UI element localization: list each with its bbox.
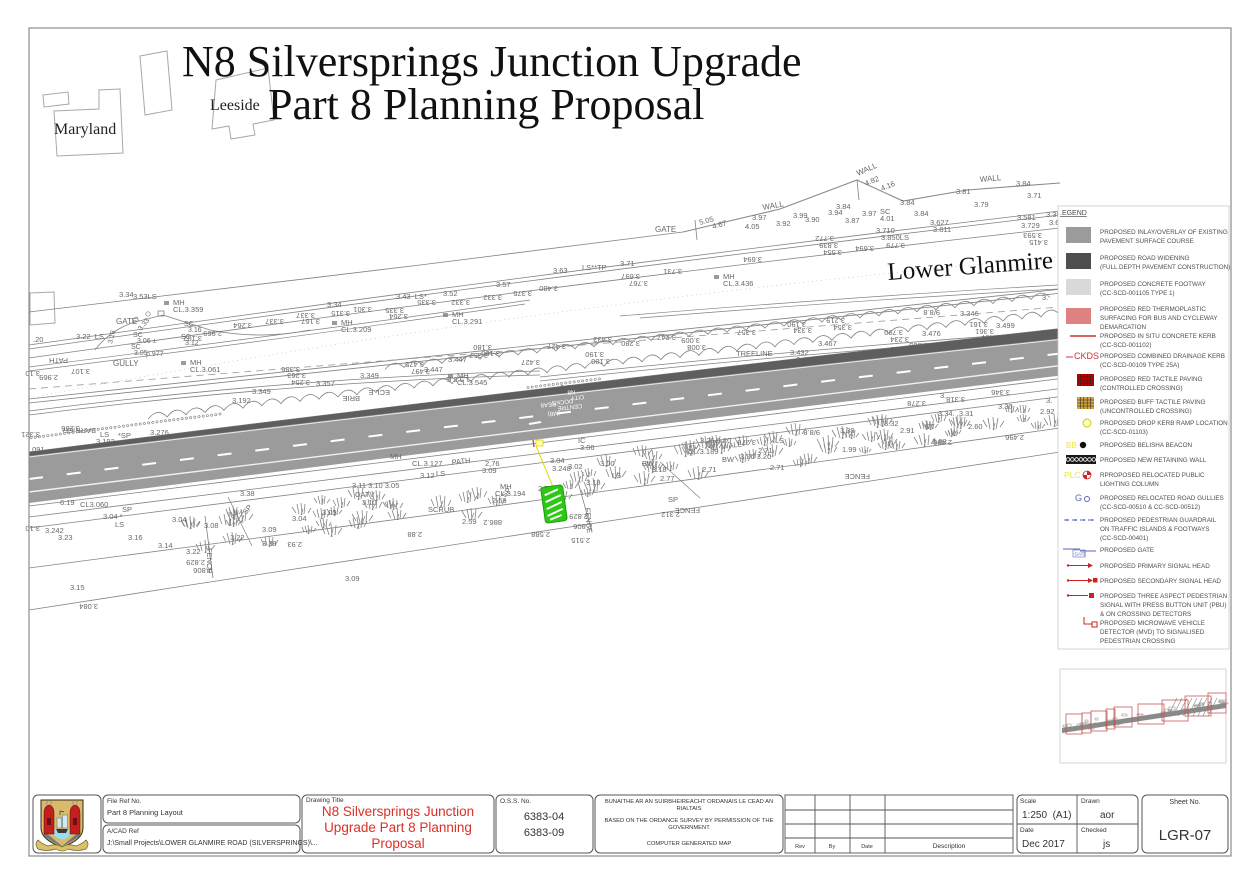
svg-text:(CC-SCD-001102): (CC-SCD-001102) (1100, 342, 1151, 349)
svg-text:3.09: 3.09 (262, 525, 277, 534)
svg-text:N8: N8 (567, 388, 576, 395)
svg-text:Date: Date (861, 844, 873, 850)
svg-text:PROPOSED PEDESTRIAN GUARDRAIL: PROPOSED PEDESTRIAN GUARDRAIL (1100, 517, 1217, 524)
svg-text:3.248: 3.248 (552, 464, 571, 473)
svg-text:3.335: 3.335 (417, 298, 436, 307)
svg-text:3.447: 3.447 (448, 355, 467, 364)
svg-text:PEDESTRIAN CROSSING: PEDESTRIAN CROSSING (1100, 638, 1176, 645)
svg-text:(CC-SCD-00401): (CC-SCD-00401) (1100, 535, 1148, 542)
svg-text:Scale: Scale (1020, 798, 1037, 805)
svg-text:DEMARCATION: DEMARCATION (1100, 324, 1147, 331)
svg-text:3.160: 3.160 (481, 349, 500, 358)
svg-text:(CC-SCD-00109 TYPE 25A): (CC-SCD-00109 TYPE 25A) (1100, 362, 1179, 369)
svg-text:File Ref No.: File Ref No. (107, 798, 142, 805)
svg-text:PROPOSED COMBINED DRAINAGE KER: PROPOSED COMBINED DRAINAGE KERB (1100, 353, 1225, 360)
svg-text:3.192: 3.192 (232, 396, 251, 405)
svg-text:3.301: 3.301 (353, 305, 372, 314)
svg-text:3.480: 3.480 (539, 284, 558, 293)
svg-text:3.729: 3.729 (1021, 221, 1040, 230)
svg-text:A/CAD Ref: A/CAD Ref (107, 828, 139, 835)
svg-text:GATE: GATE (116, 317, 137, 326)
svg-text:3.346: 3.346 (991, 388, 1010, 397)
svg-text:3.321: 3.321 (21, 430, 40, 439)
svg-text:2.93: 2.93 (287, 540, 302, 549)
svg-text:3.767: 3.767 (629, 279, 648, 288)
svg-text:2.77: 2.77 (660, 474, 675, 483)
svg-text:3.107: 3.107 (71, 367, 90, 376)
svg-text:3.63: 3.63 (553, 266, 568, 275)
svg-text:LS: LS (115, 520, 124, 529)
svg-text:BW: BW (642, 459, 655, 468)
svg-text:Proposal: Proposal (371, 836, 424, 851)
svg-text:3.05: 3.05 (322, 508, 337, 517)
svg-text:(CC-SCD-001105 TYPE 1): (CC-SCD-001105 TYPE 1) (1100, 290, 1175, 297)
svg-text:3.71: 3.71 (1027, 191, 1042, 200)
svg-text:.20: .20 (33, 335, 43, 344)
svg-text:3.332: 3.332 (483, 293, 502, 302)
svg-text:3.04: 3.04 (292, 514, 307, 523)
svg-text:PLC: PLC (1064, 470, 1081, 480)
svg-text:ECL.E: ECL.E (368, 388, 390, 397)
svg-text:GATE: GATE (1075, 552, 1087, 557)
svg-text:4.05: 4.05 (745, 222, 760, 231)
svg-text:3.22 LS: 3.22 LS (76, 332, 104, 341)
svg-text:3.349: 3.349 (252, 387, 271, 396)
svg-text:PROPOSED RELOCATED ROAD GULLIE: PROPOSED RELOCATED ROAD GULLIES (1100, 495, 1224, 502)
svg-text:GULLY: GULLY (113, 359, 139, 368)
svg-text:PROPOSED PRIMARY SIGNAL HEAD: PROPOSED PRIMARY SIGNAL HEAD (1100, 563, 1210, 570)
svg-text:RPROPOSED RELOCATED PUBLIC: RPROPOSED RELOCATED PUBLIC (1100, 472, 1205, 479)
svg-text:3.84: 3.84 (914, 209, 929, 218)
svg-text:3.79: 3.79 (974, 200, 989, 209)
svg-text:CL.3.061: CL.3.061 (190, 365, 220, 374)
svg-text:3.264: 3.264 (233, 321, 252, 330)
svg-text:COMPUTER GENERATED MAP: COMPUTER GENERATED MAP (647, 841, 732, 847)
svg-text:(CC-SCD-01103): (CC-SCD-01103) (1100, 429, 1148, 436)
svg-text:3.811: 3.811 (933, 225, 951, 234)
svg-text:.EGEND: .EGEND (1060, 210, 1087, 217)
svg-text:3.254: 3.254 (291, 378, 310, 387)
svg-text:3.427: 3.427 (521, 358, 540, 367)
svg-text:3.87: 3.87 (845, 216, 860, 225)
svg-text:3.14: 3.14 (158, 541, 173, 550)
svg-text:PAVEMENT SURFACE COURSE: PAVEMENT SURFACE COURSE (1100, 238, 1194, 245)
svg-text:3.92: 3.92 (776, 219, 791, 228)
svg-text:3.315: 3.315 (331, 309, 350, 318)
svg-text:2,76: 2,76 (485, 459, 500, 468)
svg-text:3.467: 3.467 (818, 339, 837, 348)
svg-text:3.34: 3.34 (327, 300, 342, 309)
svg-text:3.375: 3.375 (513, 289, 532, 298)
svg-text:Checked: Checked (1081, 827, 1107, 834)
svg-text:3.332: 3.332 (451, 298, 470, 307)
svg-text:3.266: 3.266 (61, 424, 80, 433)
svg-text:9/8.8: 9/8.8 (803, 428, 820, 437)
svg-text:3.167: 3.167 (301, 317, 320, 326)
svg-text:9/8.8: 9/8.8 (923, 308, 940, 317)
svg-text:3.280: 3.280 (621, 339, 640, 348)
svg-text:DETECTOR (MVD) TO SIGNALISED: DETECTOR (MVD) TO SIGNALISED (1100, 629, 1205, 636)
svg-text:SP: SP (122, 505, 132, 514)
svg-text:3.476: 3.476 (922, 329, 941, 338)
svg-text:3.10: 3.10 (25, 369, 40, 378)
svg-text:3.88: 3.88 (932, 437, 947, 446)
svg-text:BRIE: BRIE (342, 394, 360, 403)
svg-text:LIGHTING COLUMN: LIGHTING COLUMN (1100, 481, 1159, 488)
svg-text:2.829: 2.829 (569, 512, 588, 521)
svg-text:3.318: 3.318 (946, 395, 965, 404)
svg-text:2.71: 2.71 (702, 465, 717, 474)
svg-text:2.59: 2.59 (462, 517, 477, 526)
svg-text:3.09: 3.09 (345, 574, 360, 583)
svg-text:3.26 3.20: 3.26 3.20 (700, 436, 731, 445)
svg-text:6383-04: 6383-04 (524, 811, 564, 823)
svg-text:3.34. .3.31: 3.34. .3.31 (938, 409, 973, 418)
svg-text:3.850LS: 3.850LS (881, 233, 909, 242)
svg-text:J:\Small Projects\LOWER GLANMI: J:\Small Projects\LOWER GLANMIRE ROAD (S… (107, 840, 318, 847)
svg-text:3.278: 3.278 (907, 399, 926, 408)
svg-text:BW: BW (722, 455, 735, 464)
svg-text:Part 8 Planning Proposal: Part 8 Planning Proposal (268, 80, 704, 129)
svg-text:js: js (1102, 839, 1110, 850)
svg-text:Upgrade Part 8 Planning: Upgrade Part 8 Planning (324, 820, 472, 835)
svg-text:6383-09: 6383-09 (524, 827, 564, 839)
svg-text:3.23: 3.23 (58, 533, 73, 542)
svg-text:GATE: GATE (655, 225, 676, 234)
svg-text:CL.3.359: CL.3.359 (173, 305, 203, 314)
svg-text:PROPOSED THREE ASPECT PEDESTRI: PROPOSED THREE ASPECT PEDESTRIAN (1100, 593, 1228, 600)
svg-text:3.08: 3.08 (204, 521, 219, 530)
svg-text:2.806: 2.806 (573, 522, 592, 531)
svg-text:1:250 (A1): 1:250 (A1) (1022, 810, 1071, 821)
svg-text:SP: SP (668, 495, 678, 504)
svg-text:RIALTAIS: RIALTAIS (677, 806, 702, 812)
svg-text:BB: BB (1066, 441, 1077, 450)
svg-text:1.99: 1.99 (842, 445, 857, 454)
svg-text:3.04: 3.04 (172, 515, 187, 524)
svg-text:(CONTROLLED CROSSING): (CONTROLLED CROSSING) (1100, 385, 1183, 392)
svg-text:CL.3.436: CL.3.436 (723, 279, 753, 288)
svg-text:BASED ON THE ORDANCE SURVEY BY: BASED ON THE ORDANCE SURVEY BY PERMISSIO… (605, 818, 774, 824)
svg-text:3.15: 3.15 (70, 583, 85, 592)
svg-text:Date: Date (1020, 827, 1034, 834)
svg-text:886.2: 886.2 (483, 518, 502, 527)
svg-text:2.969: 2.969 (39, 373, 58, 382)
svg-text:PROPOSED RED THERMOPLASTIC: PROPOSED RED THERMOPLASTIC (1100, 306, 1206, 313)
svg-text:PATH: PATH (49, 356, 68, 365)
svg-text:WALL: WALL (979, 173, 1002, 184)
svg-text:3.84: 3.84 (900, 198, 915, 207)
svg-text:N8 Silversprings Junction Upgr: N8 Silversprings Junction Upgrade (182, 37, 802, 86)
svg-text:LS: LS (436, 469, 445, 478)
svg-text:2.515: 2.515 (571, 536, 590, 545)
svg-text:3.349: 3.349 (360, 371, 379, 380)
svg-text:Maryland: Maryland (54, 121, 116, 138)
svg-text:3.30: 3.30 (998, 402, 1013, 411)
svg-text:(FULL DEPTH PAVEMENT CONSTRUCT: (FULL DEPTH PAVEMENT CONSTRUCTION) (1100, 264, 1230, 271)
svg-text:GOVERNMENT: GOVERNMENT (668, 825, 710, 831)
svg-text:3.84: 3.84 (1016, 179, 1031, 188)
svg-text:2.806: 2.806 (193, 566, 212, 575)
svg-text:(CC-SCD-00510 & CC-SCD-00512): (CC-SCD-00510 & CC-SCD-00512) (1100, 504, 1200, 511)
svg-text:PROPOSED RED TACTILE PAVING: PROPOSED RED TACTILE PAVING (1100, 376, 1203, 383)
svg-text:2.91: 2.91 (900, 426, 915, 435)
svg-text:PROPOSED ROAD WIDENING: PROPOSED ROAD WIDENING (1100, 255, 1190, 262)
svg-text:3.731: 3.731 (663, 267, 682, 276)
svg-text:Dec 2017: Dec 2017 (1022, 839, 1065, 850)
svg-text:3.81: 3.81 (956, 187, 971, 196)
svg-text:2.88: 2.88 (407, 530, 422, 539)
svg-text:IC: IC (578, 436, 586, 445)
svg-text:Sheet No.: Sheet No. (1169, 799, 1200, 806)
svg-text:Drawing Title: Drawing Title (306, 797, 344, 804)
svg-text:3.11 3.10 3.05: 3.11 3.10 3.05 (352, 481, 399, 490)
svg-text:3.57: 3.57 (496, 280, 511, 289)
svg-text:3.554: 3.554 (823, 248, 842, 257)
svg-text:By: By (829, 844, 836, 850)
svg-text:3.52: 3.52 (443, 289, 458, 298)
svg-text:PROPOSED GATE: PROPOSED GATE (1100, 547, 1154, 554)
svg-text:MH: MH (390, 452, 402, 461)
svg-text:3.694: 3.694 (855, 244, 874, 253)
svg-text:*SP: *SP (118, 431, 131, 440)
svg-text:LS**TP: LS**TP (582, 263, 607, 272)
svg-text:3.16: 3.16 (128, 533, 143, 542)
svg-text:3.97: 3.97 (862, 209, 877, 218)
svg-text:3.: 3. (940, 391, 946, 400)
svg-text:FENCE: FENCE (845, 472, 870, 481)
svg-text:LGR-07: LGR-07 (1159, 827, 1212, 844)
svg-text:G: G (1075, 493, 1082, 503)
svg-text:Part 8 Planning Layout: Part 8 Planning Layout (107, 808, 184, 817)
svg-text:3.447: 3.447 (424, 365, 443, 374)
svg-text:3.499: 3.499 (996, 321, 1015, 330)
svg-text:PROPOSED DROP KERB RAMP LOCATI: PROPOSED DROP KERB RAMP LOCATION (1100, 420, 1228, 427)
svg-text:1.5.5.E: 1.5.5.E (446, 375, 470, 384)
svg-text:3.234: 3.234 (890, 335, 909, 344)
svg-text:PROPOSED INLAY/OVERLAY OF EXIS: PROPOSED INLAY/OVERLAY OF EXISTING (1100, 229, 1228, 236)
svg-text:3.084: 3.084 (79, 602, 98, 611)
svg-text:3.90: 3.90 (805, 215, 820, 224)
svg-text:Drawn: Drawn (1081, 798, 1100, 805)
svg-text:CL.3.291: CL.3.291 (452, 317, 482, 326)
svg-text:Rev: Rev (795, 844, 805, 850)
svg-text:3.: 3. (1042, 293, 1048, 302)
svg-text:3.779: 3.779 (886, 241, 905, 250)
svg-text:3.38: 3.38 (240, 489, 255, 498)
svg-text:4.01: 4.01 (880, 214, 895, 223)
svg-text:PROPOSED BUFF TACTILE PAVING: PROPOSED BUFF TACTILE PAVING (1100, 399, 1206, 406)
svg-text:PROPOSED CONCRETE FOOTWAY: PROPOSED CONCRETE FOOTWAY (1100, 281, 1206, 288)
svg-text:2.588: 2.588 (531, 530, 550, 539)
svg-text:3.97: 3.97 (752, 213, 767, 222)
svg-text:PROPOSED NEW RETAINING WALL: PROPOSED NEW RETAINING WALL (1100, 457, 1207, 464)
svg-text:2.92 .: 2.92 . (1040, 407, 1059, 416)
svg-text:2.829: 2.829 (186, 558, 205, 567)
svg-text:LS: LS (612, 471, 621, 480)
svg-text:2.71: 2.71 (770, 463, 785, 472)
svg-text:3.71: 3.71 (620, 259, 635, 268)
svg-text:3.694: 3.694 (743, 255, 762, 264)
svg-text:CL3.060: CL3.060 (80, 500, 108, 509)
svg-text:2.60: 2.60 (968, 422, 983, 431)
svg-text:TREELINE: TREELINE (736, 349, 773, 358)
svg-text:3.94: 3.94 (828, 208, 843, 217)
svg-text:PROPOSED BELISHA BEACON: PROPOSED BELISHA BEACON (1100, 442, 1192, 449)
svg-text:BUNAITHE AR AN SUIRBHEIREACHT: BUNAITHE AR AN SUIRBHEIREACHT ORDANAIS L… (605, 799, 773, 805)
svg-text:PROPOSED MICROWAVE VEHICLE: PROPOSED MICROWAVE VEHICLE (1100, 620, 1205, 627)
svg-text:Leeside: Leeside (210, 97, 260, 114)
svg-text:3.337: 3.337 (265, 317, 284, 326)
svg-text:PROPOSED IN SITU CONCRETE KERB: PROPOSED IN SITU CONCRETE KERB (1100, 333, 1216, 340)
svg-text:3.264: 3.264 (389, 312, 408, 321)
svg-text:PROPOSED SECONDARY SIGNAL HEAD: PROPOSED SECONDARY SIGNAL HEAD (1100, 578, 1221, 585)
svg-text:2.496: 2.496 (1005, 433, 1024, 442)
svg-text:SURFACING FOR BUS AND CYCLEWAY: SURFACING FOR BUS AND CYCLEWAY (1100, 315, 1218, 322)
svg-text:3.: 3. (1046, 396, 1052, 405)
svg-text:O.S.S. No.: O.S.S. No. (500, 798, 531, 805)
svg-text:3.12: 3.12 (420, 471, 435, 480)
svg-text:3.22: 3.22 (186, 547, 201, 556)
svg-text:3.334: 3.334 (793, 326, 812, 335)
svg-text:CL.3.127: CL.3.127 (412, 459, 442, 468)
svg-text:Description: Description (933, 843, 966, 850)
svg-text:2.312: 2.312 (661, 510, 680, 519)
svg-text:3.18: 3.18 (652, 465, 667, 474)
svg-text:aor: aor (1100, 810, 1115, 821)
svg-text:ON TRAFFIC ISLANDS & FOOTWAYS: ON TRAFFIC ISLANDS & FOOTWAYS (1100, 526, 1209, 533)
svg-text:3.10: 3.10 (25, 524, 40, 533)
svg-text:SIGNAL WITH PRESS BUTTON UNIT: SIGNAL WITH PRESS BUTTON UNIT (PBU) (1100, 602, 1227, 609)
svg-text:CKDS: CKDS (1074, 351, 1099, 361)
svg-text:3.415: 3.415 (1029, 238, 1048, 247)
svg-text:(UNCONTROLLED CROSSING): (UNCONTROLLED CROSSING) (1100, 408, 1192, 415)
svg-text:N8 Silversprings Junction: N8 Silversprings Junction (322, 804, 474, 819)
svg-text:2.969: 2.969 (203, 329, 222, 338)
svg-text:& ON CROSSING DETECTORS: & ON CROSSING DETECTORS (1100, 611, 1191, 618)
svg-text:3.16: 3.16 (188, 327, 202, 334)
svg-text:3.107: 3.107 (183, 334, 202, 343)
svg-text:3.53LS: 3.53LS (133, 292, 157, 301)
svg-text:3.357: 3.357 (316, 379, 335, 388)
svg-text:6.19: 6.19 (60, 498, 75, 507)
svg-text:3.34: 3.34 (119, 290, 134, 299)
